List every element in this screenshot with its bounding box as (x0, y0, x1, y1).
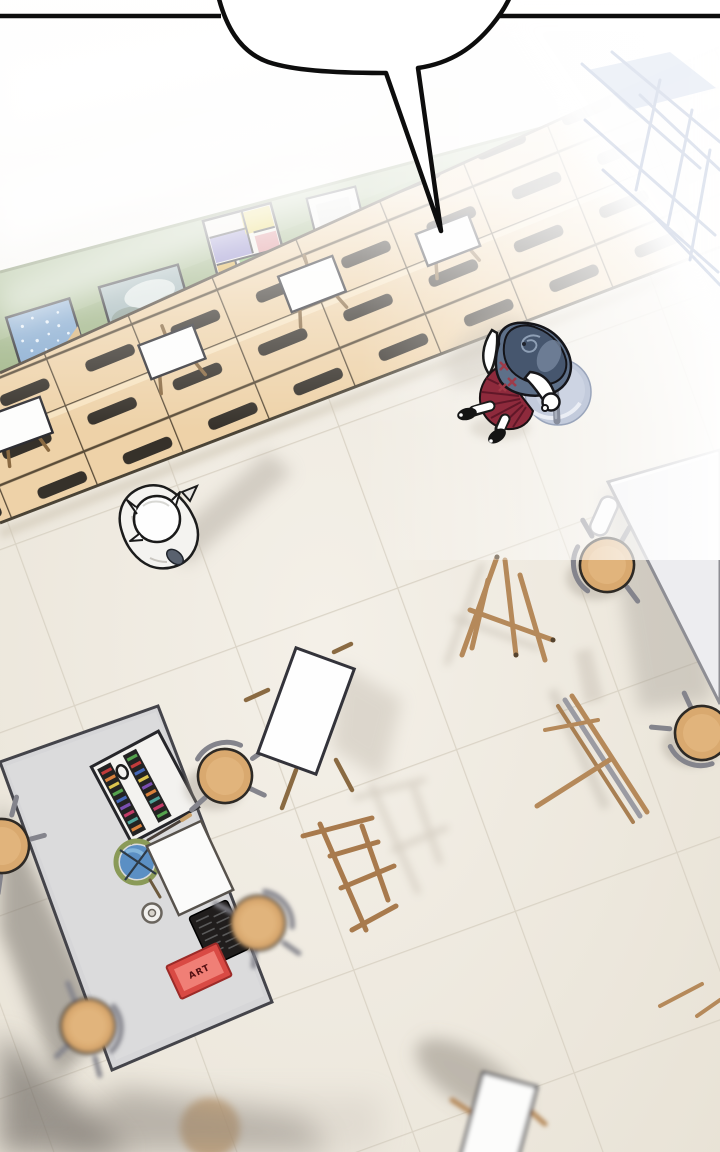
comic-panel: ART (0, 0, 720, 1152)
tape-roll (143, 904, 162, 923)
